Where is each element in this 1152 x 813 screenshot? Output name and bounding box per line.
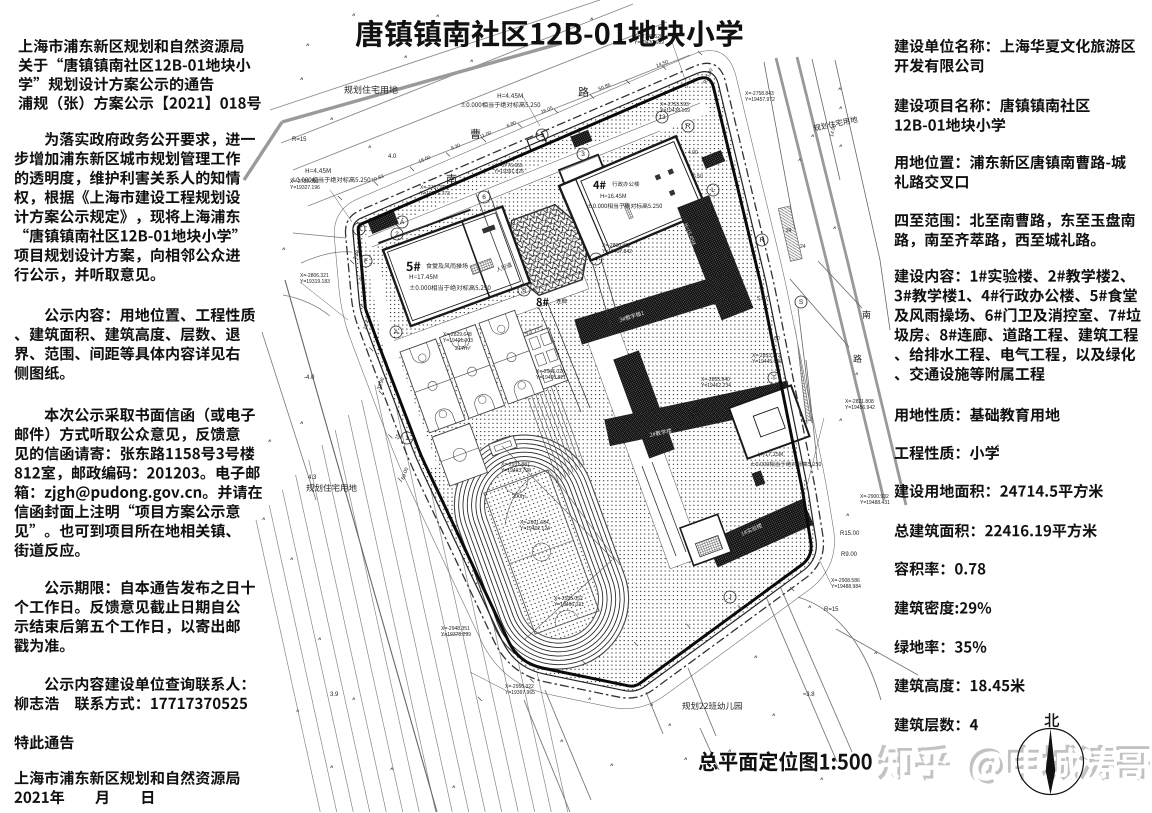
svg-text:A: A [394,329,399,336]
svg-text:Y=19406.031: Y=19406.031 [554,602,584,608]
svg-text:24: 24 [786,228,792,234]
svg-text:11.00: 11.00 [479,130,493,140]
svg-text:R9.00: R9.00 [841,552,858,558]
svg-text:A: A [400,219,405,226]
svg-text:2: 2 [395,231,399,238]
svg-text:69.00: 69.00 [400,467,410,481]
svg-text:Y=19445.646: Y=19445.646 [752,359,782,365]
svg-text:Y=19457.972: Y=19457.972 [745,97,775,103]
svg-text:50.86: 50.86 [598,82,612,92]
svg-text:24: 24 [800,244,806,250]
svg-text:8.00: 8.00 [770,336,780,342]
svg-text:Y=19405.821: Y=19405.821 [536,375,566,381]
svg-text:F: F [364,258,368,265]
svg-text:Y=19327.196: Y=19327.196 [290,185,320,191]
svg-text:R: R [686,123,691,130]
svg-text:Y=19371.773: Y=19371.773 [420,191,450,197]
svg-text:R: R [760,237,765,244]
svg-text:E: E [693,407,698,414]
svg-text:Y=19488.984: Y=19488.984 [831,584,861,590]
svg-text:Y=19488.431: Y=19488.431 [860,500,890,506]
svg-text:J: J [728,594,731,601]
svg-text:200m: 200m [512,494,526,500]
svg-text:Y=19397.965: Y=19397.965 [505,690,535,696]
svg-text:T: T [772,375,776,382]
svg-text:Y=19403.706: Y=19403.706 [501,468,531,474]
svg-text:3.9: 3.9 [330,692,339,698]
svg-text:6.00: 6.00 [700,201,710,207]
svg-text:≈3.8: ≈3.8 [803,692,815,698]
svg-text:5.50: 5.50 [757,296,767,302]
svg-text:1: 1 [405,435,409,442]
svg-text:B: B [357,226,361,233]
svg-text:Y=19391.826: Y=19391.826 [494,169,524,175]
svg-text:3: 3 [581,151,585,158]
svg-text:Y=19407.842: Y=19407.842 [602,249,632,255]
svg-text:6.80: 6.80 [506,120,517,129]
svg-text:13: 13 [658,114,666,121]
svg-text:6: 6 [482,194,486,201]
svg-text:Y=19378.299: Y=19378.299 [441,632,471,638]
svg-text:R=15: R=15 [292,137,307,143]
svg-text:L: L [711,187,715,194]
svg-text:4: 4 [594,256,598,263]
svg-text:33.90: 33.90 [376,377,386,391]
svg-text:Y=19402.124: Y=19402.124 [520,526,550,532]
svg-text:Y=19438.169: Y=19438.169 [660,108,690,114]
svg-text:R=15: R=15 [824,607,839,613]
svg-text:4.0: 4.0 [388,154,397,160]
svg-text:Y=19319.183: Y=19319.183 [300,279,330,285]
svg-text:9.20: 9.20 [450,143,461,152]
svg-text:16.05: 16.05 [540,105,554,115]
svg-text:6.50: 6.50 [693,174,703,180]
svg-text:1: 1 [540,132,544,139]
svg-text:18.00: 18.00 [418,155,432,165]
svg-text:217m²: 217m² [455,346,471,352]
svg-text:14.50: 14.50 [829,124,838,138]
svg-text:6: 6 [522,287,526,294]
svg-text:50.83: 50.83 [371,174,385,184]
svg-text:Y=19401.903: Y=19401.903 [443,338,473,344]
svg-text:Y=19456.942: Y=19456.942 [845,405,875,411]
svg-text:Y=19462.234: Y=19462.234 [701,383,731,389]
svg-text:R15.00: R15.00 [840,531,860,537]
svg-text:4.00: 4.00 [688,150,698,156]
svg-text:4.3: 4.3 [308,475,317,481]
svg-text:S: S [799,299,804,306]
svg-text:-4.0: -4.0 [304,375,315,381]
